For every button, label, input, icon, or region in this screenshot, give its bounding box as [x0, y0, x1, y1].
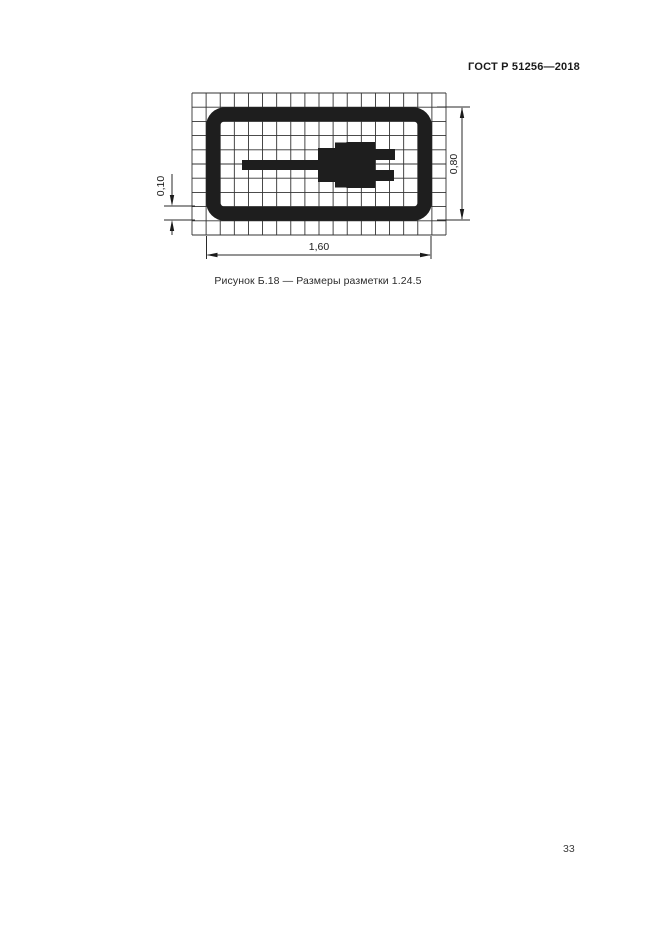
standard-designation: ГОСТ Р 51256—2018: [468, 61, 580, 73]
page-number: 33: [563, 843, 575, 855]
dimension-label-height: 0,80: [448, 154, 460, 175]
arrowhead-up: [170, 220, 174, 231]
dimension-label-line-width: 0,10: [155, 176, 167, 197]
arrowhead-up: [460, 107, 464, 118]
dimension-line-width: 0,10: [155, 174, 195, 235]
plug-cord: [242, 160, 319, 170]
plug-body-taper: [335, 142, 375, 188]
document-page: ГОСТ Р 51256—2018: [0, 0, 661, 935]
dimension-label-width: 1,60: [309, 241, 330, 253]
arrowhead-left: [207, 253, 218, 257]
dimension-width: 1,60: [207, 236, 432, 259]
dimension-height: 0,80: [437, 107, 470, 220]
marking-diagram-svg: 0,10 0,80 1,60: [140, 85, 480, 275]
plug-rear-block: [318, 148, 335, 182]
plug-prong-bottom: [375, 170, 394, 181]
arrowhead-down: [460, 209, 464, 220]
plug-prong-top: [375, 149, 395, 160]
figure-caption: Рисунок Б.18 — Размеры разметки 1.24.5: [140, 275, 496, 287]
arrowhead-right: [420, 253, 431, 257]
arrowhead-down: [170, 195, 174, 206]
electric-plug-icon: [242, 142, 395, 188]
